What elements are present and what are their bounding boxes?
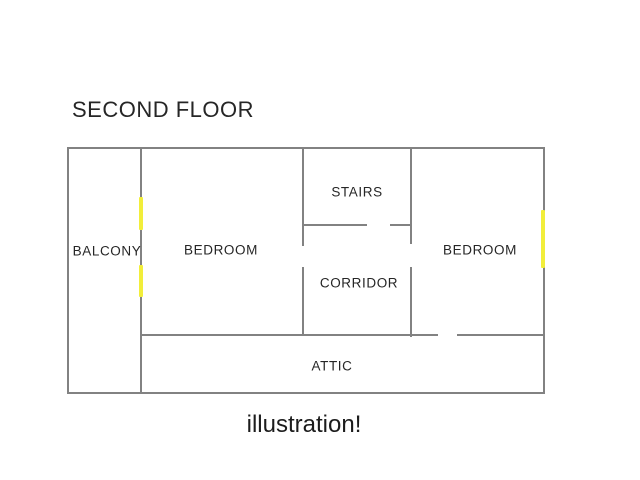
stairs-bottom-wall-left <box>302 224 367 226</box>
bedroom1-stairs-wall-upper <box>302 147 304 246</box>
stairs-bedroom2-wall-upper <box>410 147 412 244</box>
room-label-balcony-0: BALCONY <box>73 244 142 259</box>
balcony-door-marker-lower <box>139 265 143 297</box>
room-label-bedroom-1: BEDROOM <box>184 243 258 258</box>
stairs-bottom-wall-right <box>390 224 412 226</box>
outer-wall-right <box>543 147 545 394</box>
caption-text: illustration! <box>247 411 362 439</box>
room-label-corridor-3: CORRIDOR <box>320 276 398 291</box>
attic-top-wall-right <box>457 334 545 336</box>
corridor-bedroom2-wall-lower <box>410 267 412 337</box>
bedroom1-corridor-wall-lower <box>302 267 304 336</box>
page-title: SECOND FLOOR <box>72 97 254 123</box>
outer-wall-left <box>67 147 69 394</box>
room-label-attic-5: ATTIC <box>312 359 353 374</box>
room-label-stairs-2: STAIRS <box>331 185 382 200</box>
bedroom2-door-marker <box>541 210 545 268</box>
room-label-bedroom-4: BEDROOM <box>443 243 517 258</box>
floorplan-canvas: SECOND FLOOR BALCONYBEDROOMSTAIRSCORRIDO… <box>0 0 640 480</box>
outer-wall-bottom <box>67 392 545 394</box>
balcony-door-marker-upper <box>139 197 143 230</box>
attic-top-wall-left <box>140 334 438 336</box>
outer-wall-top <box>67 147 545 149</box>
